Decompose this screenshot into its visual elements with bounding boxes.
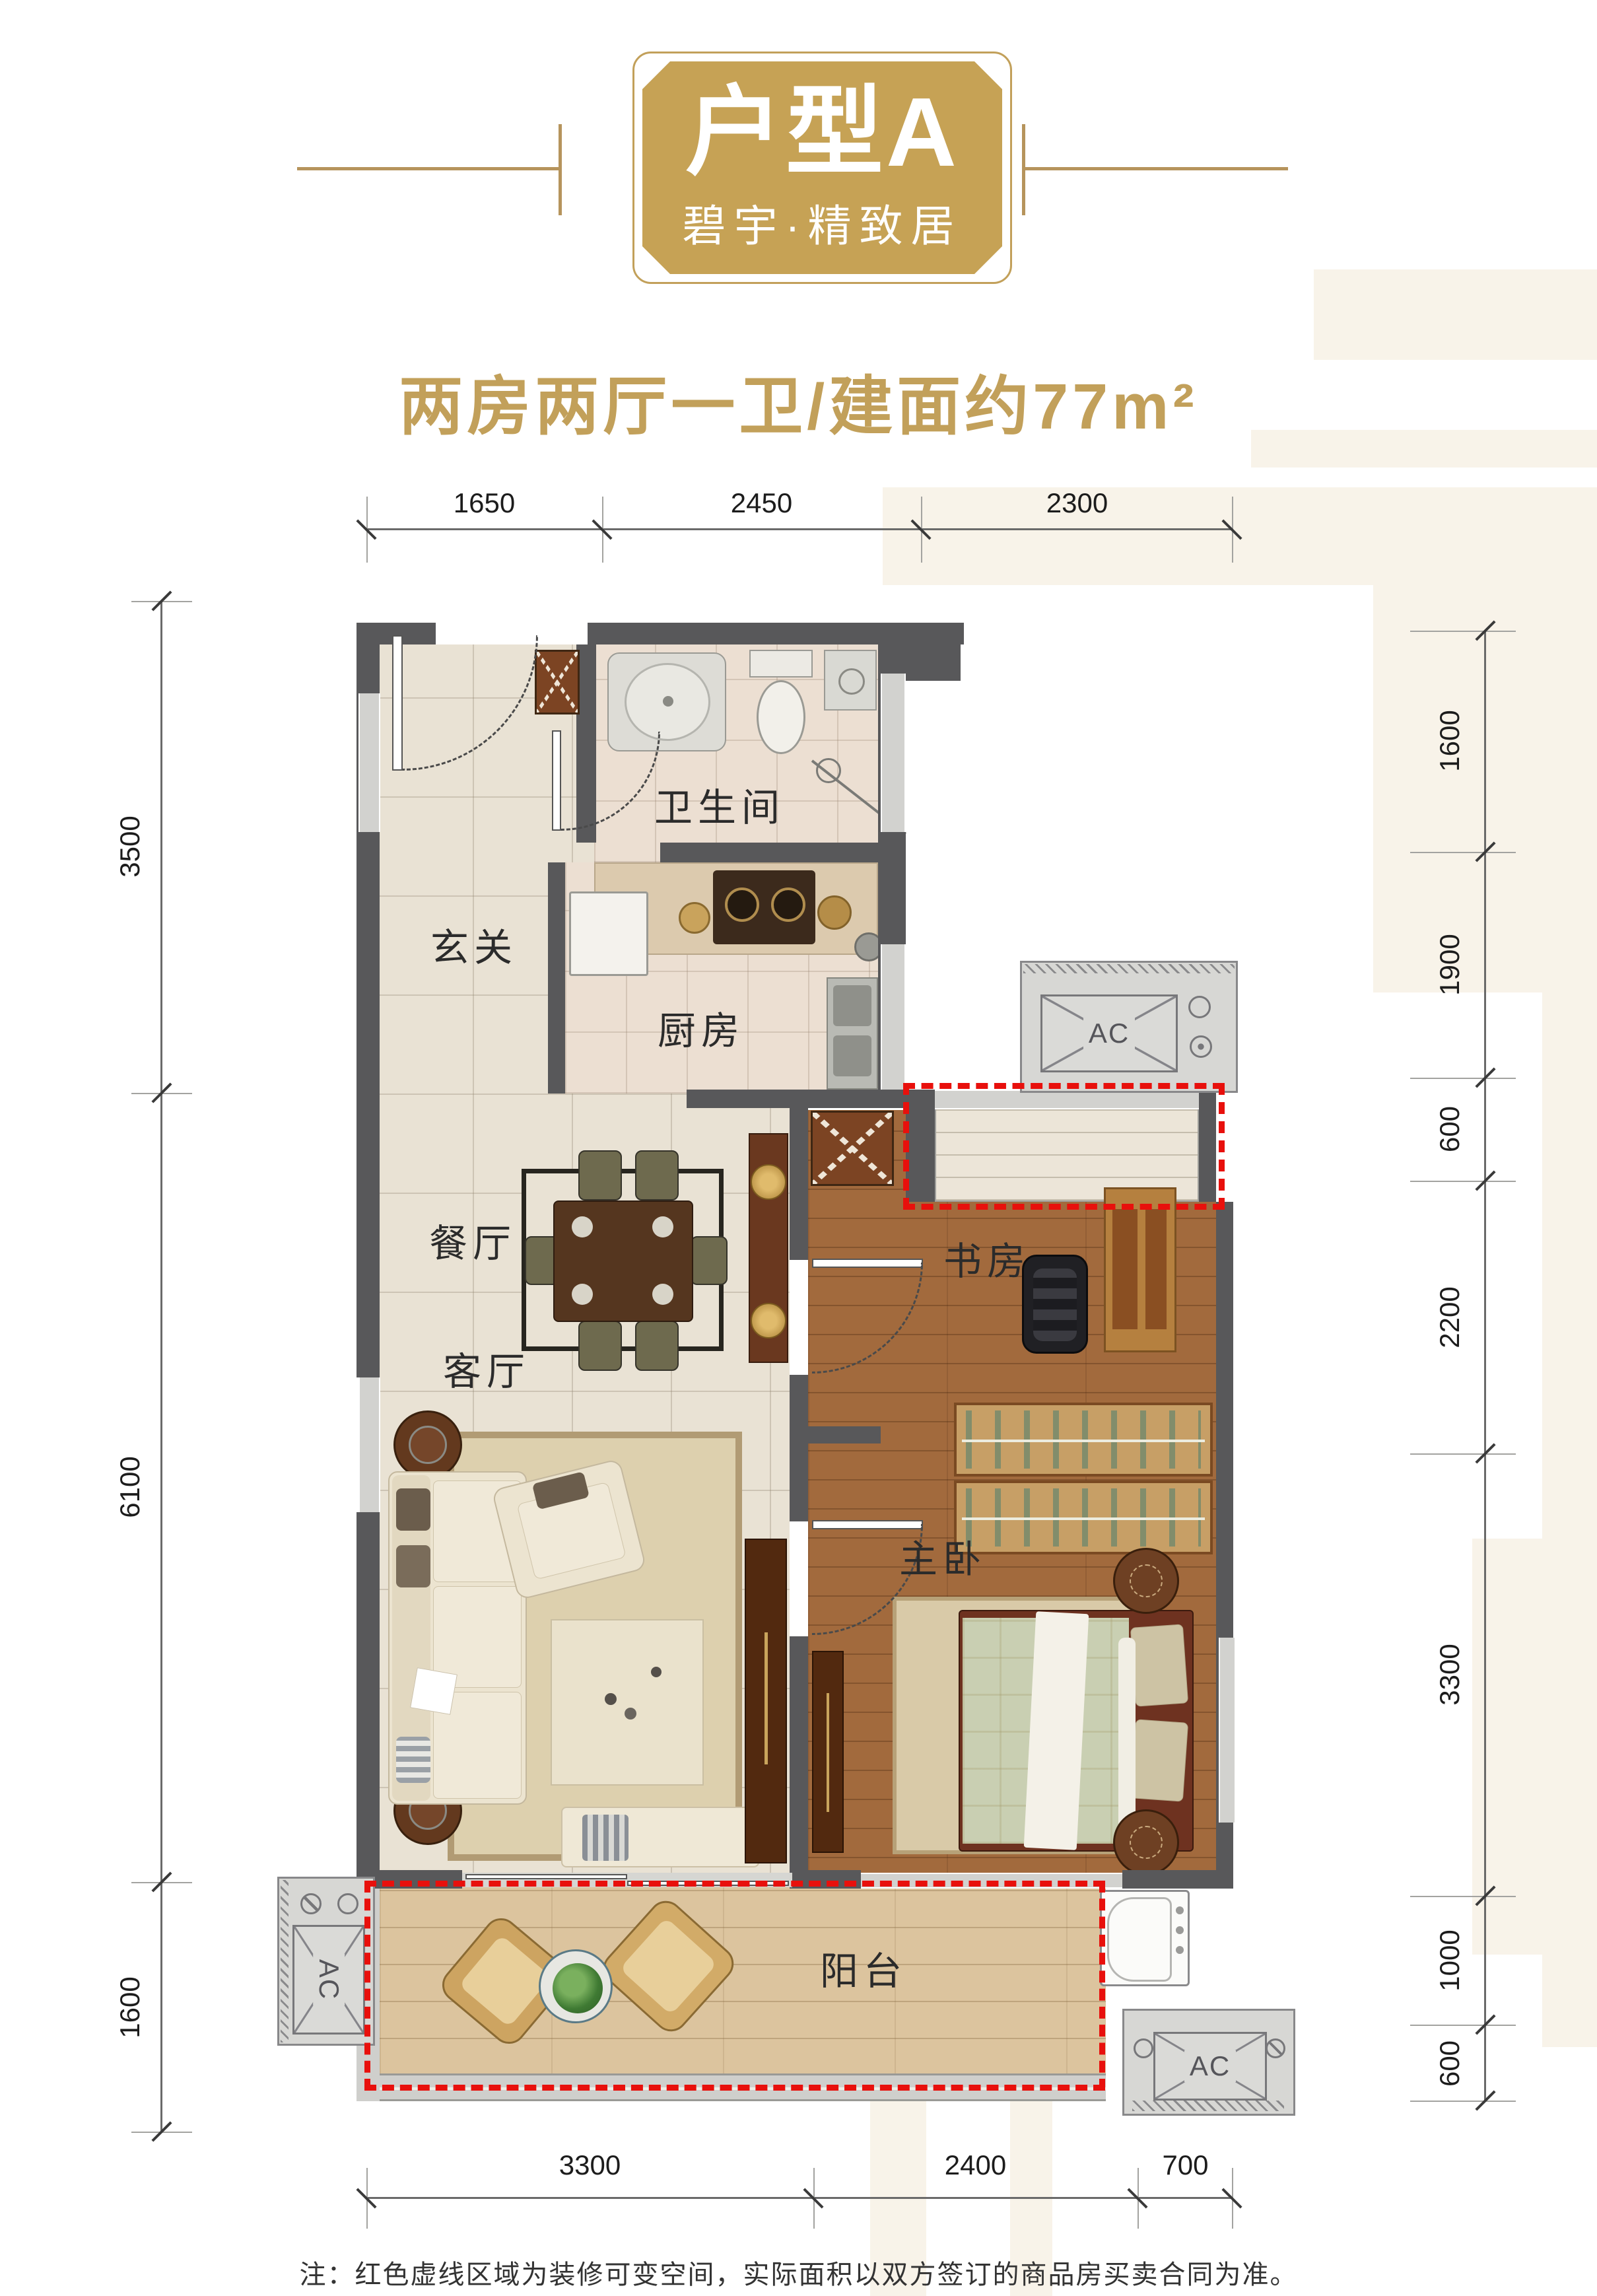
dim-value: 600 <box>1434 1106 1466 1152</box>
dim-value: 2300 <box>921 487 1233 519</box>
decor-tick-left <box>559 124 562 215</box>
decor-line-right <box>1025 167 1288 170</box>
badge-subtitle: 碧宇·精致居 <box>683 191 963 254</box>
dining-chair <box>691 1236 728 1285</box>
kitchen-sink <box>827 977 878 1090</box>
dining-chair <box>635 1150 679 1200</box>
fridge <box>569 891 648 976</box>
room-label-study: 书房 <box>943 1230 1031 1286</box>
shaft-box <box>535 650 580 714</box>
nightstand <box>1113 1548 1179 1614</box>
bathroom-door-leaf <box>552 730 561 831</box>
shower-head-icon <box>816 758 841 783</box>
bedroom-dresser <box>812 1651 844 1853</box>
footer-note: 注：红色虚线区域为装修可变空间，实际面积以双方签订的商品房买卖合同为准。 <box>0 2253 1597 2291</box>
wall-segment <box>660 843 906 862</box>
kitchen-jar <box>679 902 710 934</box>
wall-segment <box>687 1090 906 1108</box>
footer-note-text: 注：红色虚线区域为装修可变空间，实际面积以双方签订的商品房买卖合同为准。 <box>300 2260 1298 2289</box>
ac-label: AC <box>1184 2050 1236 2082</box>
dim-value: 2400 <box>813 2149 1138 2181</box>
side-table <box>393 1410 462 1479</box>
bed-pillow <box>1118 1638 1136 1829</box>
badge-title: 户型A <box>685 81 959 184</box>
sideboard-lamp <box>751 1164 786 1200</box>
bench <box>561 1807 759 1867</box>
room-label-dining: 餐厅 <box>429 1212 516 1268</box>
title-badge: 户型A 碧宇·精致居 <box>632 52 1012 284</box>
room-label-bathroom: 卫生间 <box>654 777 785 832</box>
study-desk <box>1104 1187 1176 1352</box>
dim-value: 3300 <box>366 2149 813 2181</box>
dining-chair <box>578 1150 622 1200</box>
wall-segment <box>548 862 565 1094</box>
wall-segment <box>357 1512 380 1870</box>
window <box>881 674 906 832</box>
washing-machine <box>1100 1890 1190 1986</box>
dimension-left: 3500 6100 1600 <box>160 601 240 2133</box>
dimension-bottom: 3300 2400 700 <box>366 2149 1233 2229</box>
bed-pillow <box>1130 1719 1188 1801</box>
dim-value: 3300 <box>1434 1644 1466 1705</box>
entry-door-leaf <box>392 635 403 771</box>
dim-value: 1600 <box>114 1976 146 2038</box>
dim-value: 1000 <box>1434 1930 1466 1991</box>
watermark-shape <box>1314 269 1597 360</box>
room-label-foyer: 玄关 <box>430 917 518 972</box>
closet <box>954 1403 1213 1477</box>
wall-segment <box>808 1426 881 1444</box>
wall-segment <box>1122 1870 1233 1889</box>
dim-value: 1600 <box>1434 710 1466 771</box>
toilet-bowl <box>757 680 805 754</box>
dim-value: 2450 <box>602 487 921 519</box>
dim-value: 2200 <box>1434 1286 1466 1348</box>
tv-console <box>745 1539 787 1863</box>
stove <box>713 870 815 944</box>
nightstand <box>1113 1809 1179 1875</box>
dining-chair <box>635 1321 679 1371</box>
room-label-balcony: 阳台 <box>820 1940 907 1996</box>
shaft-box <box>811 1111 894 1186</box>
dim-value: 1650 <box>366 487 602 519</box>
ac-label: AC <box>313 1954 345 2005</box>
office-chair <box>1022 1255 1088 1354</box>
ac-platform-left: AC <box>277 1877 375 2046</box>
convertible-zone-bay <box>903 1083 1225 1210</box>
room-label-kitchen: 厨房 <box>658 1000 745 1055</box>
dim-value: 6100 <box>114 1456 146 1517</box>
wall-segment <box>790 1375 808 1521</box>
ac-platform-bottom-right: AC <box>1122 2009 1295 2116</box>
ac-label: AC <box>1083 1018 1135 1049</box>
bed-pillow <box>1130 1624 1188 1706</box>
convertible-zone-balcony <box>364 1881 1105 2091</box>
room-label-living: 客厅 <box>443 1340 530 1396</box>
dining-chair <box>578 1321 622 1371</box>
closet <box>954 1480 1213 1554</box>
sideboard-lamp <box>751 1303 786 1339</box>
coffee-table <box>551 1619 704 1786</box>
dim-value: 1900 <box>1434 934 1466 995</box>
tagline: 两房两厅一卫/建面约77m² <box>0 354 1597 447</box>
wall-segment <box>790 1108 808 1260</box>
window <box>1219 1638 1236 1823</box>
window <box>881 944 906 1090</box>
window <box>358 693 380 832</box>
dining-table <box>553 1200 693 1322</box>
dimension-top: 1650 2450 2300 <box>366 487 1233 560</box>
window <box>358 1377 380 1512</box>
wall-segment <box>790 1636 808 1889</box>
dim-value: 600 <box>1434 2040 1466 2087</box>
tagline-text: 两房两厅一卫/建面约77m² <box>399 370 1198 442</box>
bathroom-vanity <box>824 650 877 711</box>
dimension-right: 1600 1900 600 2200 3300 1000 600 <box>1484 631 1563 2102</box>
room-label-master: 主卧 <box>899 1528 986 1583</box>
ac-platform-top: AC <box>1020 961 1238 1093</box>
dim-value: 700 <box>1138 2149 1233 2181</box>
decor-line-left <box>297 167 560 170</box>
dim-value: 3500 <box>114 816 146 877</box>
toilet-tank <box>749 650 813 678</box>
wall-segment <box>588 623 964 644</box>
kitchen-jar <box>817 895 852 930</box>
